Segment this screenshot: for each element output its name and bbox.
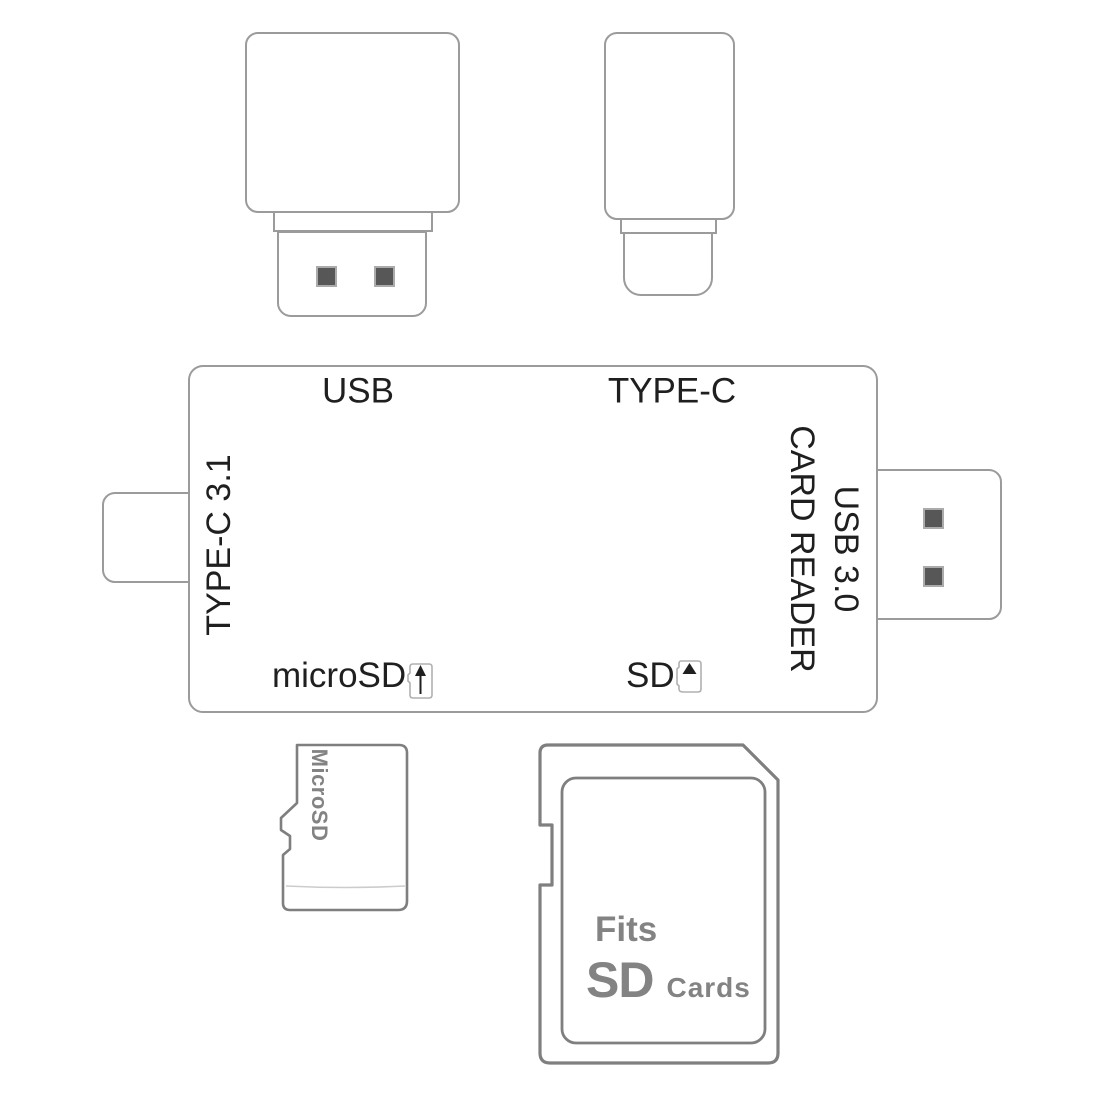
sd-card-text: Fits SD Cards	[586, 912, 751, 1005]
micro-sd-slot-label: microSD	[272, 658, 406, 693]
usb-a-adapter-plug	[277, 231, 427, 317]
micro-sd-card-label: MicroSD	[308, 749, 330, 842]
usb-a-adapter-body	[245, 32, 460, 213]
usb-contact-square-icon	[374, 266, 395, 287]
micro-sd-card-shape	[275, 740, 415, 916]
sd-card-fits-text: Fits	[595, 912, 751, 947]
usb-contact-square-icon	[316, 266, 337, 287]
usb-contact-square-icon	[923, 566, 944, 587]
sd-card-cards-text: Cards	[666, 974, 750, 1002]
reader-right-side-label: USB 3.0 CARD READER	[780, 425, 868, 672]
reader-right-label-line1: USB 3.0	[824, 425, 868, 672]
usb-contact-square-icon	[923, 508, 944, 529]
sd-slot-label: SD	[626, 658, 675, 693]
reader-right-label-line2: CARD READER	[780, 425, 824, 672]
usb-c-adapter-body	[604, 32, 735, 220]
usb-a-adapter-collar	[273, 211, 433, 232]
sd-slot-icon	[675, 659, 705, 696]
usb-c-adapter-collar	[620, 218, 717, 234]
reader-usb-label: USB	[322, 374, 394, 409]
sd-card-row: SD Cards	[586, 955, 751, 1005]
reader-type-c-label: TYPE-C	[608, 374, 736, 409]
product-illustration: USB TYPE-C TYPE-C 3.1 USB 3.0 CARD READE…	[0, 0, 1100, 1100]
sd-card-sd-text: SD	[586, 955, 653, 1005]
usb-c-adapter-plug	[623, 232, 713, 296]
reader-left-side-label: TYPE-C 3.1	[197, 454, 241, 635]
reader-type-c-connector	[102, 492, 190, 583]
sd-card-shape	[535, 740, 785, 1070]
reader-usb-plug	[870, 469, 1002, 620]
micro-sd-slot-icon	[406, 662, 435, 701]
